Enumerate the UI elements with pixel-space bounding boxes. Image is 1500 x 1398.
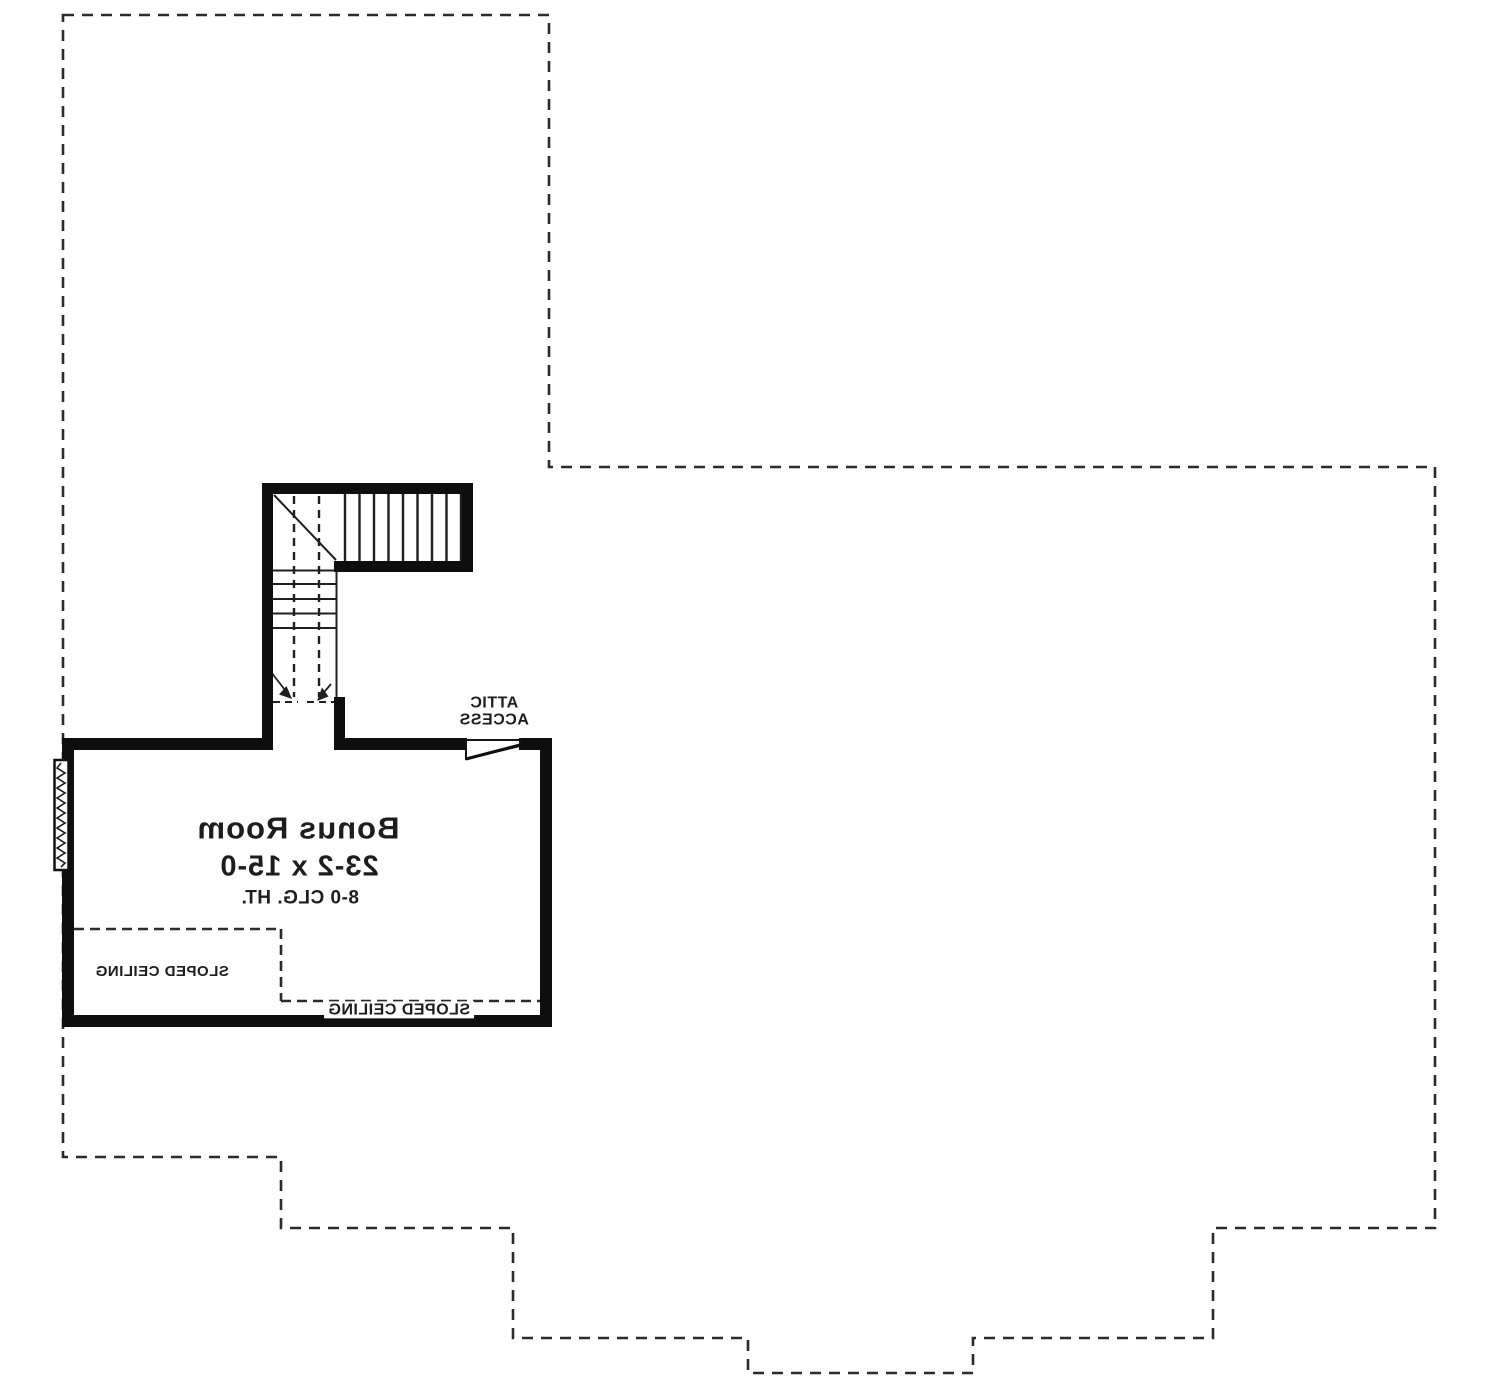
room-top-wall-left xyxy=(62,738,273,750)
room-bottom-wall xyxy=(62,1015,552,1027)
stair-treads-lower xyxy=(273,571,336,629)
sloped-ceiling-label-bottom: SLOPED CEILING xyxy=(324,1001,474,1018)
attic-access-hatch xyxy=(466,740,520,759)
room-top-wall-middle xyxy=(334,738,467,750)
floor-plan-drawing xyxy=(0,0,1500,1398)
stair-winder-diagonal xyxy=(274,495,336,560)
attic-access-label-line2: ACCESS xyxy=(459,712,529,729)
stairwell-left-wall xyxy=(262,483,273,750)
room-right-wall xyxy=(540,738,552,1027)
stairwell-top-wall xyxy=(262,483,473,494)
room-dimensions-label: 23-2 x 15-0 xyxy=(219,851,378,882)
attic-access-label: ATTIC ACCESS xyxy=(459,695,529,730)
sloped-ceiling-label-left: SLOPED CEILING xyxy=(95,964,229,980)
stair-treads-upper xyxy=(345,494,461,561)
stair-run-bottom-wall xyxy=(334,561,473,572)
stairwell-right-wall xyxy=(462,483,473,572)
attic-access-label-line1: ATTIC xyxy=(459,695,529,712)
stair-arrowhead-left xyxy=(279,686,292,699)
window xyxy=(55,760,69,870)
ceiling-height-label: 8-0 CLG. HT. xyxy=(241,889,359,910)
stairwell xyxy=(267,494,461,702)
floor-plan-canvas: Bonus Room 23-2 x 15-0 8-0 CLG. HT. ATTI… xyxy=(0,0,1500,1398)
room-name-label: Bonus Room xyxy=(197,811,400,844)
